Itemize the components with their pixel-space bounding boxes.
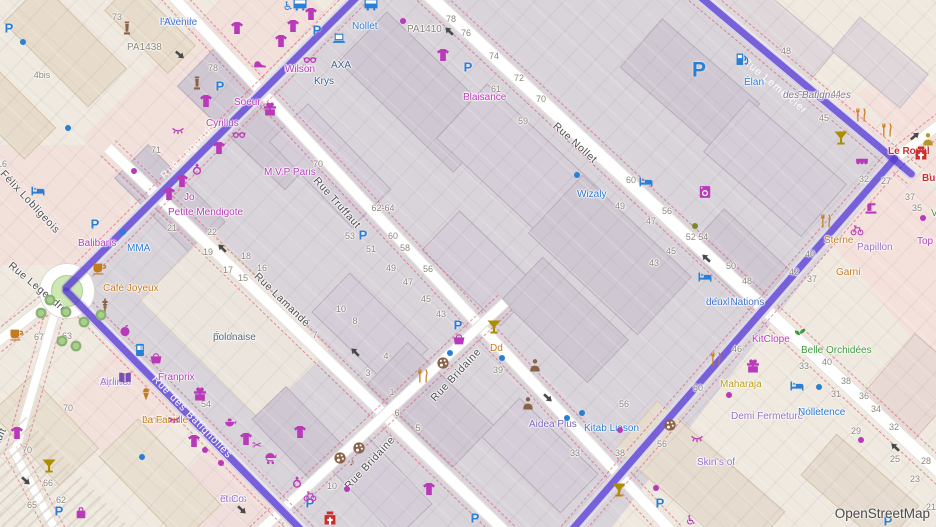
house-number: 70	[313, 159, 323, 169]
apple-icon	[119, 324, 132, 337]
fork-icon	[417, 370, 430, 383]
cross-icon	[324, 512, 337, 525]
ring-icon	[291, 476, 304, 489]
bed-icon	[699, 271, 712, 284]
house-number: 51	[366, 244, 376, 254]
house-number: 18	[241, 251, 251, 261]
gift-icon	[747, 360, 760, 373]
tree-icon	[44, 294, 57, 307]
map-canvas[interactable]: Rue NolletRue TruffautRue LamandéRue Bri…	[0, 0, 936, 527]
basket-icon	[150, 352, 163, 365]
house-number: 27	[881, 176, 891, 186]
house-number: 43	[436, 309, 446, 319]
house-number: 45	[421, 294, 431, 304]
tshirt-icon	[213, 142, 226, 155]
tshirt-icon	[200, 95, 213, 108]
laptop-icon	[333, 32, 346, 45]
house-number: 34	[871, 404, 881, 414]
house-number: 78	[208, 63, 218, 73]
teapot-icon	[224, 417, 237, 430]
cross-icon	[915, 147, 928, 160]
house-number: 53	[345, 231, 355, 241]
house-number: 73	[112, 12, 122, 22]
fork-icon	[881, 124, 894, 137]
palette-icon	[664, 419, 677, 432]
poi-dot-icon	[579, 410, 585, 416]
house-number: 49	[615, 201, 625, 211]
house-number: 39	[493, 365, 503, 375]
tree-icon	[78, 316, 91, 329]
house-number: 40	[805, 249, 815, 259]
house-number: 47	[646, 216, 656, 226]
house-number: 70	[22, 445, 32, 455]
person-icon	[922, 133, 935, 146]
house-number: 56	[662, 206, 672, 216]
glasses-icon	[233, 128, 246, 141]
parking-icon: P	[359, 229, 368, 242]
house-number: 66	[43, 478, 53, 488]
parking-icon: P	[464, 61, 473, 74]
house-number: 65	[27, 500, 37, 510]
plant-icon	[794, 328, 807, 341]
house-number: 49	[386, 263, 396, 273]
tshirt-icon	[287, 20, 300, 33]
house-number: 31	[831, 389, 841, 399]
tshirt-icon	[188, 435, 201, 448]
palette-icon	[353, 442, 366, 455]
scissors-icon: ✂	[252, 439, 262, 451]
cocktail-icon	[613, 484, 626, 497]
tree-icon	[35, 307, 48, 320]
tshirt-icon	[11, 427, 24, 440]
house-number: 70	[536, 94, 546, 104]
house-number: 44	[831, 89, 841, 99]
house-number: 56	[423, 264, 433, 274]
house-number: 5	[415, 423, 420, 433]
house-number: 21	[167, 223, 177, 233]
poi-dot-icon	[139, 454, 145, 460]
gift-icon	[194, 388, 207, 401]
parking-icon: P	[91, 218, 100, 231]
poi-dot-icon	[726, 392, 732, 398]
parking-icon: P	[454, 319, 463, 332]
house-number: 1	[389, 387, 394, 397]
tree-icon	[70, 340, 83, 353]
eye-icon	[691, 432, 704, 445]
poi-dot-icon	[574, 172, 580, 178]
vending-icon	[134, 344, 147, 357]
house-number: 7	[312, 330, 317, 340]
cocktail-icon	[43, 460, 56, 473]
house-number: 72	[514, 73, 524, 83]
tree-icon	[95, 309, 108, 322]
house-number: 48	[742, 276, 752, 286]
house-number: 16	[0, 159, 7, 169]
house-number: 10	[327, 481, 337, 491]
house-number: 56	[657, 439, 667, 449]
book-icon	[119, 372, 132, 385]
house-number: 76	[461, 28, 471, 38]
house-number: 56	[619, 399, 629, 409]
shoe-icon	[254, 57, 267, 70]
poi-dot-icon	[344, 486, 350, 492]
tshirt-icon	[437, 49, 450, 62]
parking-icon: P	[216, 80, 225, 93]
house-number: 10	[336, 304, 346, 314]
house-number: 52 54	[686, 232, 709, 242]
fork-icon	[710, 353, 723, 366]
bed-icon	[32, 185, 45, 198]
house-number: 16	[257, 263, 267, 273]
sewing-icon	[865, 202, 878, 215]
bike-icon	[304, 490, 317, 503]
parking-icon: P	[656, 497, 665, 510]
house-number: 60	[626, 175, 636, 185]
house-number: 50	[693, 383, 703, 393]
person-icon	[522, 397, 535, 410]
house-number: 62-64	[371, 203, 394, 213]
poi-dot-icon	[400, 18, 406, 24]
house-number: 45	[666, 246, 676, 256]
poi-dot-icon	[653, 485, 659, 491]
house-number: 61	[491, 84, 501, 94]
tshirt-icon	[423, 483, 436, 496]
house-number: 8	[352, 316, 357, 326]
attribution-openstreetmap[interactable]: OpenStreetMap	[835, 506, 930, 521]
house-number: 60	[388, 231, 398, 241]
cone-icon	[140, 388, 153, 401]
wheelchair-icon: ♿	[685, 514, 697, 527]
poi-dot-icon	[65, 125, 71, 131]
house-number: 3	[365, 368, 370, 378]
poi-dot-icon	[816, 384, 822, 390]
tshirt-icon	[176, 175, 189, 188]
palette-icon	[334, 452, 347, 465]
cup-icon	[11, 328, 24, 341]
awning-icon	[856, 156, 869, 169]
poi-dot-icon	[20, 39, 26, 45]
house-number: 15	[238, 273, 248, 283]
house-number: 33	[570, 448, 580, 458]
monument-icon	[191, 77, 204, 90]
house-number: 50	[726, 261, 736, 271]
house-number: 22	[207, 227, 217, 237]
house-number: 43	[649, 258, 659, 268]
building	[3, 0, 127, 107]
house-number: 33	[799, 361, 809, 371]
bike-icon	[851, 224, 864, 237]
house-number: 17	[223, 265, 233, 275]
house-number: 54	[201, 399, 211, 409]
house-number: 70	[63, 403, 73, 413]
palette-icon	[437, 357, 450, 370]
tree-icon	[60, 306, 73, 319]
cup-icon	[94, 262, 107, 275]
poi-dot-icon	[447, 350, 453, 356]
house-number: 23	[910, 474, 920, 484]
parking-icon: P	[55, 505, 64, 518]
poi-dot-icon	[499, 355, 505, 361]
luggage-icon	[75, 507, 88, 520]
parking-icon: P	[692, 60, 706, 81]
poi-dot-icon	[202, 447, 208, 453]
poi-dot-icon	[617, 427, 623, 433]
poi-dot-icon	[564, 415, 570, 421]
cocktail-icon	[835, 132, 848, 145]
house-number: 6	[394, 408, 399, 418]
poi-dot-icon	[120, 229, 126, 235]
poi-dot-icon	[920, 215, 926, 221]
tshirt-icon	[275, 35, 288, 48]
tshirt-icon	[294, 426, 307, 439]
house-number: 47	[403, 277, 413, 287]
monument-icon	[121, 22, 134, 35]
house-number: 4bis	[34, 70, 51, 80]
laundry-icon	[699, 186, 712, 199]
house-number: 74	[489, 51, 499, 61]
house-number: 28	[921, 456, 931, 466]
parking-icon: P	[313, 24, 322, 37]
house-number: 42	[789, 267, 799, 277]
house-number: 71	[151, 145, 161, 155]
bus-icon	[294, 0, 307, 11]
house-number: 35	[912, 203, 922, 213]
house-number: 40	[822, 357, 832, 367]
house-number: 48	[781, 46, 791, 56]
ring-icon	[191, 163, 204, 176]
poi-dot-icon	[858, 437, 864, 443]
house-number: 37	[905, 192, 915, 202]
parking-icon: P	[5, 22, 14, 35]
fork-icon	[820, 215, 833, 228]
house-number: 59	[518, 116, 528, 126]
house-number: 29	[851, 426, 861, 436]
tree-icon	[56, 335, 69, 348]
bed-icon	[640, 176, 653, 189]
house-number: 38	[615, 448, 625, 458]
house-number: 37	[807, 274, 817, 284]
tshirt-icon	[240, 433, 253, 446]
bed-icon	[791, 380, 804, 393]
eye-icon	[172, 124, 185, 137]
stroller-icon	[264, 452, 277, 465]
eye-icon	[168, 413, 181, 426]
house-number: 36	[859, 391, 869, 401]
poi-dot-icon	[131, 168, 137, 174]
gift-icon	[264, 103, 277, 116]
music-icon: ♪	[349, 458, 355, 469]
house-number: 25	[890, 454, 900, 464]
house-number: 67	[34, 332, 44, 342]
cocktail-icon	[488, 321, 501, 334]
bus-icon	[365, 0, 378, 11]
tshirt-icon	[163, 188, 176, 201]
tshirt-icon	[231, 22, 244, 35]
person-icon	[529, 359, 542, 372]
house-number: 38	[841, 376, 851, 386]
fork-icon	[855, 109, 868, 122]
basket-icon	[453, 333, 466, 346]
house-number: 32	[889, 422, 899, 432]
house-number: 32	[859, 174, 869, 184]
house-number: 58	[400, 243, 410, 253]
poi-dot-icon	[218, 460, 224, 466]
fuel-icon	[736, 53, 749, 66]
house-number: 4	[383, 351, 388, 361]
house-number: 45	[819, 113, 829, 123]
house-number: 46	[732, 344, 742, 354]
poi-dot-icon	[692, 223, 698, 229]
parking-icon: P	[471, 512, 480, 525]
wheelchair-icon: ♿	[283, 0, 294, 12]
glasses-icon	[304, 53, 317, 66]
house-number: 19	[203, 247, 213, 257]
